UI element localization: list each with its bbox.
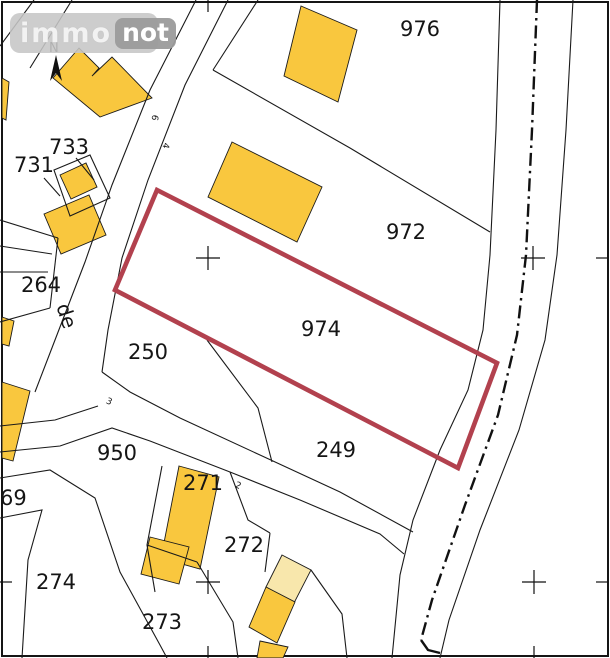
building: [2, 78, 9, 120]
parcel-label-271: 271: [183, 471, 223, 495]
map-canvas: N 976 972 974 733 731 264 250 249 950 69…: [0, 0, 610, 658]
parcel-boundary: [207, 340, 272, 462]
street-name-label: de: [51, 300, 82, 331]
grid-cross: [196, 246, 220, 270]
parcel-label-274: 274: [36, 570, 76, 594]
parcel-label-733: 733: [49, 135, 89, 159]
parcel-boundary: [197, 562, 238, 658]
label-leader-line: [0, 246, 52, 254]
parcel-boundary: [265, 533, 270, 572]
parcel-label-69: 69: [0, 486, 27, 510]
immonot-logo: immo not: [10, 13, 158, 53]
parcel-boundary: [311, 570, 347, 658]
building: [284, 6, 357, 102]
logo-text-immo: immo: [20, 20, 112, 47]
parcel-label-731: 731: [14, 153, 54, 177]
house-number-4: 4: [159, 142, 170, 150]
labels-layer: 976 972 974 733 731 264 250 249 950 69 2…: [0, 17, 440, 634]
parcel-label-264: 264: [21, 273, 61, 297]
parcel-label-974: 974: [301, 317, 341, 341]
commune-boundary-layer: [421, 0, 537, 653]
building: [60, 163, 97, 199]
parcel-label-950: 950: [97, 441, 137, 465]
road-edge: [440, 0, 573, 658]
commune-boundary-line: [421, 0, 537, 640]
road-edge: [102, 372, 413, 532]
road-number-3: 3: [104, 396, 113, 407]
road-number-2: 2: [233, 480, 242, 491]
cadastral-map: N 976 972 974 733 731 264 250 249 950 69…: [0, 0, 610, 658]
parcel-label-273: 273: [142, 610, 182, 634]
parcel-label-250: 250: [128, 340, 168, 364]
parcel-boundary: [213, 0, 258, 70]
grid-cross: [522, 570, 546, 594]
logo-text-not: not: [115, 18, 176, 49]
parcel-label-272: 272: [224, 533, 264, 557]
parcel-boundary: [0, 308, 50, 322]
grid-cross: [196, 570, 220, 594]
commune-boundary-line: [421, 640, 440, 653]
building: [257, 641, 288, 658]
parcel-label-972: 972: [386, 220, 426, 244]
parcel-label-249: 249: [316, 438, 356, 462]
house-number-6: 6: [148, 114, 159, 122]
building: [53, 48, 152, 117]
parcel-label-976: 976: [400, 17, 440, 41]
